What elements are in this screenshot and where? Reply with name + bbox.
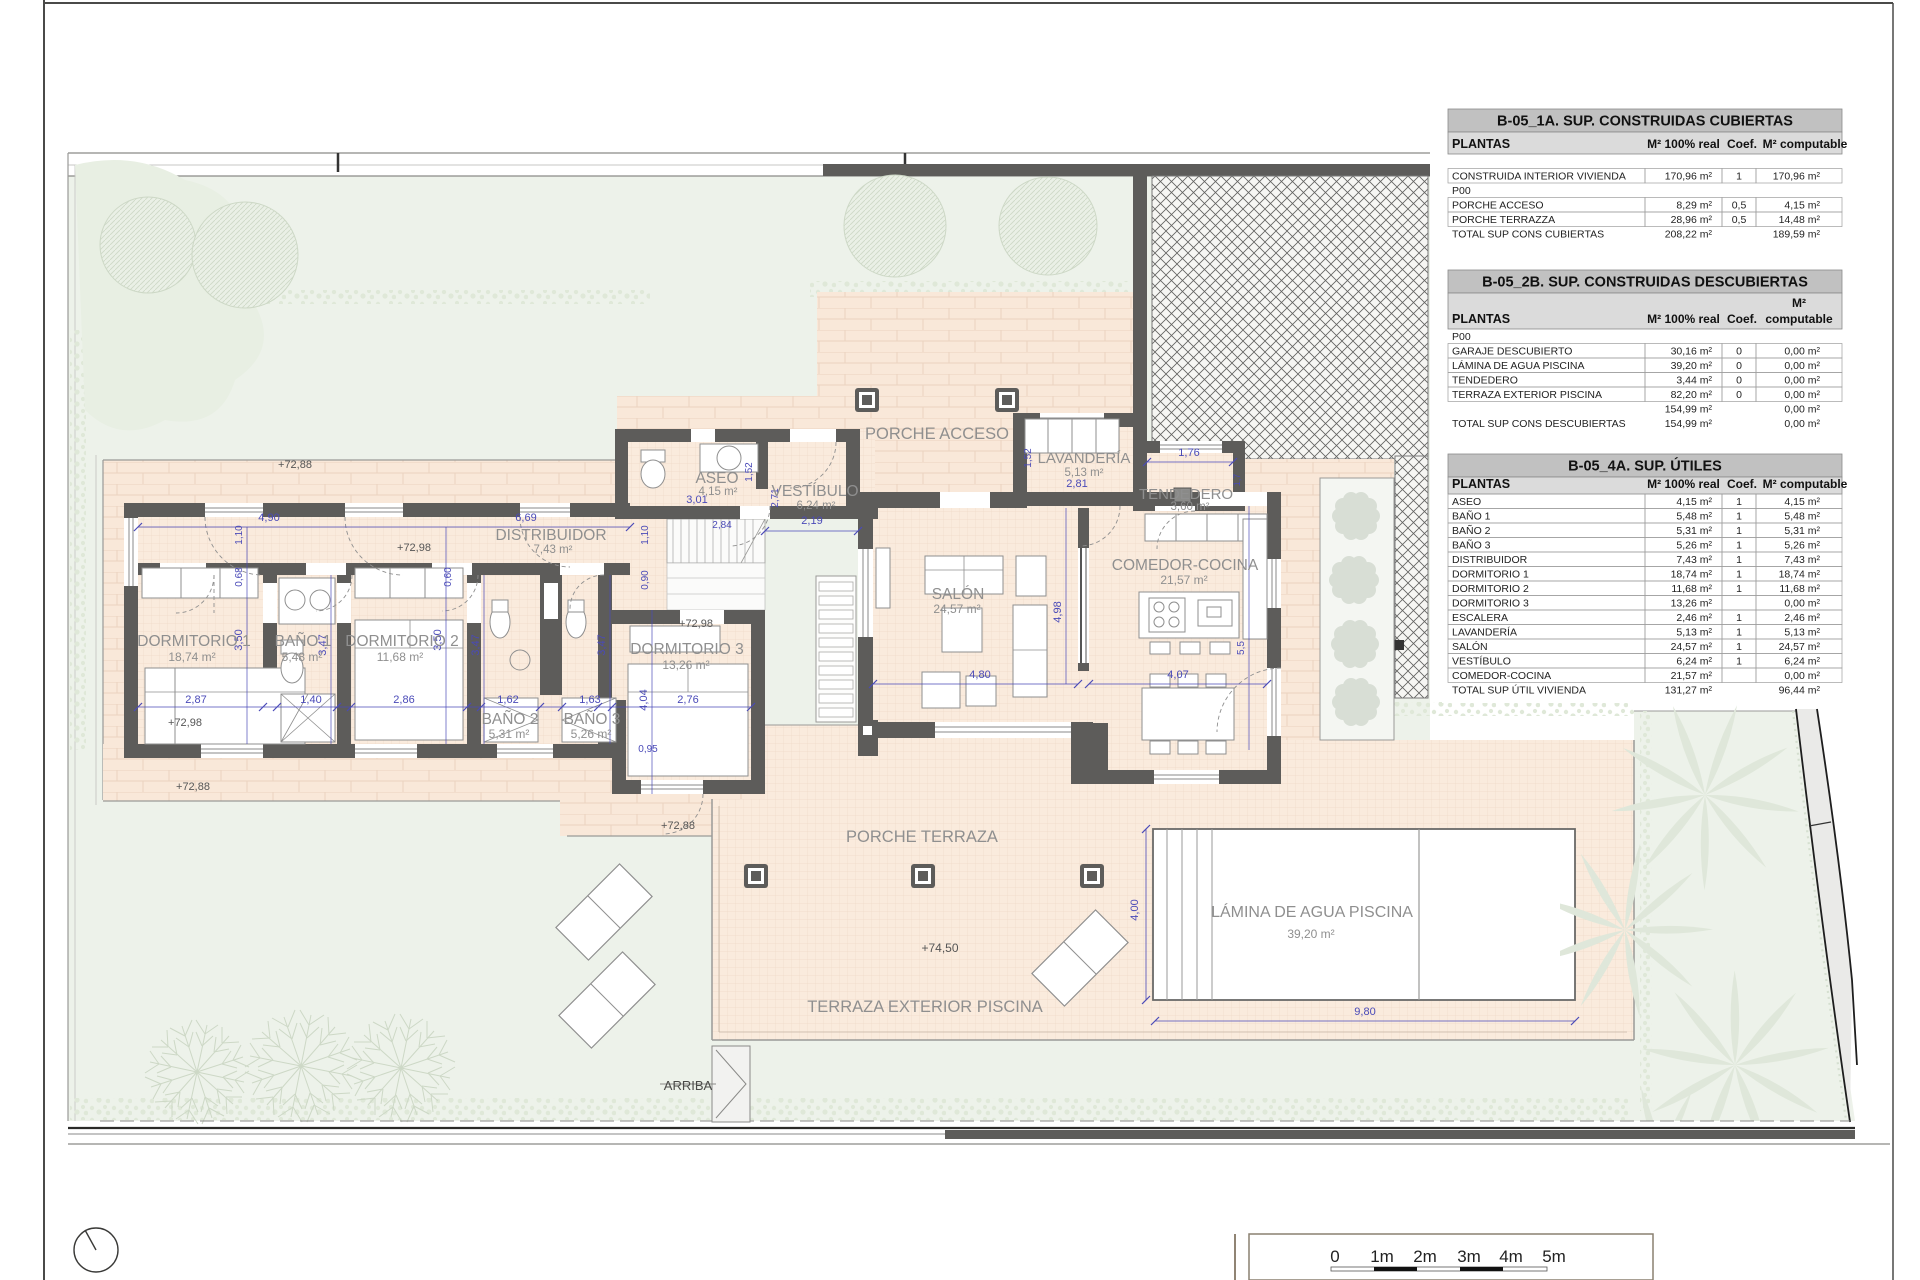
svg-text:11,68 m²: 11,68 m² (1779, 583, 1820, 595)
svg-text:21,57 m²: 21,57 m² (1160, 573, 1207, 587)
svg-text:2,76: 2,76 (677, 694, 698, 706)
svg-text:0,00 m²: 0,00 m² (1784, 598, 1820, 610)
svg-text:5,48 m²: 5,48 m² (1676, 511, 1712, 523)
svg-text:4,04: 4,04 (638, 689, 650, 710)
svg-text:computable: computable (1765, 312, 1833, 326)
svg-text:2,87: 2,87 (185, 694, 206, 706)
svg-text:ASEO: ASEO (1452, 496, 1481, 508)
svg-text:0: 0 (1736, 375, 1742, 387)
svg-text:0,90: 0,90 (640, 570, 651, 590)
svg-text:1: 1 (1736, 496, 1742, 508)
svg-text:2,46 m²: 2,46 m² (1784, 612, 1820, 624)
svg-text:4,15 m²: 4,15 m² (1784, 496, 1820, 508)
svg-text:BAÑO 3: BAÑO 3 (1452, 539, 1491, 552)
svg-text:39,20 m²: 39,20 m² (1671, 360, 1713, 372)
svg-text:B-05_2B. SUP. CONSTRUIDAS DESC: B-05_2B. SUP. CONSTRUIDAS DESCUBIERTAS (1482, 275, 1808, 291)
svg-text:24,57 m²: 24,57 m² (933, 602, 980, 616)
svg-text:0: 0 (1736, 389, 1742, 401)
svg-text:LAVANDERÍA: LAVANDERÍA (1038, 450, 1131, 467)
svg-text:11,68 m²: 11,68 m² (377, 650, 423, 664)
svg-text:1,10: 1,10 (234, 525, 245, 545)
svg-text:154,99 m²: 154,99 m² (1665, 418, 1713, 430)
svg-text:3,47: 3,47 (596, 634, 608, 655)
svg-text:ARRIBA: ARRIBA (664, 1078, 713, 1093)
svg-text:PORCHE TERRAZZA: PORCHE TERRAZZA (1452, 214, 1555, 226)
svg-text:0,60: 0,60 (443, 567, 454, 587)
svg-text:1,52: 1,52 (744, 462, 755, 482)
svg-text:5,26 m²: 5,26 m² (571, 727, 612, 741)
svg-text:DORMITORIO 1: DORMITORIO 1 (137, 633, 250, 650)
svg-text:96,44 m²: 96,44 m² (1779, 685, 1821, 697)
svg-text:0,00 m²: 0,00 m² (1784, 346, 1820, 358)
svg-text:11,68 m²: 11,68 m² (1671, 583, 1712, 595)
svg-text:1,76: 1,76 (1178, 447, 1199, 459)
svg-text:SALÓN: SALÓN (932, 586, 985, 603)
svg-text:2m: 2m (1413, 1247, 1437, 1266)
svg-text:1: 1 (1736, 554, 1742, 566)
svg-text:DORMITORIO 3: DORMITORIO 3 (630, 641, 743, 658)
svg-text:VESTÍBULO: VESTÍBULO (772, 483, 859, 500)
svg-text:+72,98: +72,98 (679, 618, 713, 630)
svg-text:LÁMINA DE AGUA PISCINA: LÁMINA DE AGUA PISCINA (1211, 902, 1413, 921)
svg-text:1,10: 1,10 (640, 525, 651, 545)
svg-text:7,43 m²: 7,43 m² (1676, 554, 1712, 566)
svg-text:170,96 m²: 170,96 m² (1665, 171, 1713, 183)
svg-text:ESCALERA: ESCALERA (1452, 612, 1508, 624)
svg-text:4,07: 4,07 (1167, 669, 1188, 681)
svg-text:14,48 m²: 14,48 m² (1779, 214, 1821, 226)
svg-text:208,22 m²: 208,22 m² (1665, 229, 1713, 241)
svg-text:VESTÍBULO: VESTÍBULO (1452, 655, 1511, 668)
svg-text:5,48 m²: 5,48 m² (1784, 511, 1820, 523)
svg-text:4,15 m²: 4,15 m² (1784, 200, 1820, 212)
svg-text:5,5: 5,5 (1236, 641, 1247, 655)
svg-text:3,47: 3,47 (470, 634, 482, 655)
svg-text:24,57 m²: 24,57 m² (1779, 641, 1821, 653)
svg-text:0: 0 (1330, 1247, 1339, 1266)
svg-text:2,86: 2,86 (393, 694, 414, 706)
svg-text:M² 100% real: M² 100% real (1647, 312, 1720, 326)
svg-text:LÁMINA DE AGUA PISCINA: LÁMINA DE AGUA PISCINA (1452, 359, 1584, 372)
svg-text:SALÓN: SALÓN (1452, 640, 1488, 653)
svg-text:+74,50: +74,50 (921, 941, 958, 955)
svg-text:4,80: 4,80 (969, 669, 990, 681)
svg-text:1: 1 (1736, 641, 1742, 653)
svg-text:Coef.: Coef. (1727, 477, 1757, 491)
svg-text:3m: 3m (1457, 1247, 1481, 1266)
svg-text:2,84: 2,84 (712, 520, 732, 531)
svg-text:1m: 1m (1370, 1247, 1394, 1266)
svg-text:5,13 m²: 5,13 m² (1065, 467, 1104, 479)
svg-text:13,26 m²: 13,26 m² (1671, 598, 1713, 610)
svg-text:DORMITORIO 1: DORMITORIO 1 (1452, 569, 1529, 581)
svg-text:Coef.: Coef. (1727, 137, 1757, 151)
svg-text:+72,98: +72,98 (397, 542, 431, 554)
svg-text:5,31 m²: 5,31 m² (1676, 525, 1712, 537)
svg-text:1,63: 1,63 (579, 694, 600, 706)
svg-text:0,00 m²: 0,00 m² (1784, 360, 1820, 372)
svg-text:5m: 5m (1542, 1247, 1566, 1266)
svg-text:5,31 m²: 5,31 m² (489, 727, 530, 741)
svg-text:CONSTRUIDA INTERIOR VIVIENDA: CONSTRUIDA INTERIOR VIVIENDA (1452, 171, 1626, 183)
svg-text:13,26 m²: 13,26 m² (662, 658, 709, 672)
svg-text:154,99 m²: 154,99 m² (1665, 404, 1713, 416)
svg-text:1: 1 (1736, 612, 1742, 624)
svg-text:5,13 m²: 5,13 m² (1676, 627, 1712, 639)
svg-text:7,43 m²: 7,43 m² (534, 544, 573, 556)
svg-text:4,00: 4,00 (1129, 899, 1141, 920)
svg-text:30,16 m²: 30,16 m² (1671, 346, 1713, 358)
svg-text:0,00 m²: 0,00 m² (1784, 389, 1820, 401)
svg-text:BAÑO 2: BAÑO 2 (482, 711, 539, 728)
svg-text:6,24 m²: 6,24 m² (1676, 656, 1712, 668)
svg-text:5,26 m²: 5,26 m² (1784, 540, 1820, 552)
svg-text:24,57 m²: 24,57 m² (1671, 641, 1713, 653)
svg-text:PLANTAS: PLANTAS (1452, 477, 1510, 491)
svg-text:1,62: 1,62 (497, 694, 518, 706)
svg-text:170,96 m²: 170,96 m² (1773, 171, 1821, 183)
svg-text:6,69: 6,69 (515, 512, 536, 524)
svg-text:1: 1 (1736, 627, 1742, 639)
svg-text:M² 100% real: M² 100% real (1647, 137, 1720, 151)
svg-text:1: 1 (1736, 171, 1742, 183)
svg-text:+72,88: +72,88 (278, 459, 312, 471)
svg-text:6,24 m²: 6,24 m² (797, 500, 836, 512)
svg-text:0,00 m²: 0,00 m² (1784, 375, 1820, 387)
svg-text:18,74 m²: 18,74 m² (168, 650, 215, 664)
svg-text:P00: P00 (1452, 185, 1471, 197)
svg-text:B-05_1A. SUP. CONSTRUIDAS CUBI: B-05_1A. SUP. CONSTRUIDAS CUBIERTAS (1497, 114, 1793, 130)
svg-text:21,57 m²: 21,57 m² (1671, 670, 1713, 682)
svg-text:5,26 m²: 5,26 m² (1676, 540, 1712, 552)
svg-text:PLANTAS: PLANTAS (1452, 137, 1510, 151)
svg-text:PORCHE ACCESO: PORCHE ACCESO (865, 425, 1009, 443)
svg-text:82,20 m²: 82,20 m² (1671, 389, 1713, 401)
svg-text:0,00 m²: 0,00 m² (1784, 404, 1820, 416)
svg-text:PLANTAS: PLANTAS (1452, 312, 1510, 326)
svg-text:M²: M² (1792, 296, 1806, 310)
svg-text:4,15 m²: 4,15 m² (699, 486, 738, 498)
svg-text:GARAJE DESCUBIERTO: GARAJE DESCUBIERTO (1452, 346, 1572, 358)
svg-text:0,00 m²: 0,00 m² (1784, 418, 1820, 430)
svg-text:1,7: 1,7 (1232, 474, 1242, 487)
svg-text:0,5: 0,5 (1732, 214, 1747, 226)
svg-text:18,74 m²: 18,74 m² (1671, 569, 1713, 581)
svg-text:1,40: 1,40 (300, 694, 321, 706)
svg-text:Coef.: Coef. (1727, 312, 1757, 326)
svg-text:5,48 m²: 5,48 m² (282, 650, 323, 664)
svg-text:18,74 m²: 18,74 m² (1779, 569, 1821, 581)
svg-text:4,15 m²: 4,15 m² (1676, 496, 1712, 508)
svg-text:BAÑO 1: BAÑO 1 (275, 633, 332, 650)
svg-text:B-05_4A. SUP. ÚTILES: B-05_4A. SUP. ÚTILES (1568, 457, 1722, 475)
svg-text:TERRAZA EXTERIOR PISCINA: TERRAZA EXTERIOR PISCINA (1452, 389, 1602, 401)
svg-text:0: 0 (1736, 360, 1742, 372)
svg-text:TOTAL SUP ÚTIL VIVIENDA: TOTAL SUP ÚTIL VIVIENDA (1452, 684, 1586, 697)
svg-text:ASEO: ASEO (695, 470, 738, 487)
svg-text:0: 0 (1736, 346, 1742, 358)
svg-text:P00: P00 (1452, 331, 1471, 343)
svg-text:4,90: 4,90 (258, 512, 279, 524)
svg-text:0,00 m²: 0,00 m² (1784, 670, 1820, 682)
svg-text:5,31 m²: 5,31 m² (1784, 525, 1820, 537)
svg-text:3,44 m²: 3,44 m² (1676, 375, 1712, 387)
svg-text:189,59 m²: 189,59 m² (1773, 229, 1821, 241)
svg-text:TENDEDERO: TENDEDERO (1452, 375, 1518, 387)
svg-text:COMEDOR-COCINA: COMEDOR-COCINA (1112, 557, 1259, 574)
svg-text:131,27 m²: 131,27 m² (1665, 685, 1713, 697)
svg-text:DISTRIBUIDOR: DISTRIBUIDOR (1452, 554, 1528, 566)
svg-text:M² computable: M² computable (1763, 137, 1848, 151)
svg-text:2,81: 2,81 (1066, 478, 1087, 490)
svg-text:28,96 m²: 28,96 m² (1671, 214, 1713, 226)
svg-text:0,68: 0,68 (234, 567, 245, 587)
svg-text:4m: 4m (1499, 1247, 1523, 1266)
svg-text:1,52: 1,52 (1023, 448, 1034, 468)
svg-text:BAÑO 2: BAÑO 2 (1452, 524, 1491, 537)
svg-text:1: 1 (1736, 511, 1742, 523)
svg-text:4,98: 4,98 (1052, 601, 1064, 622)
svg-text:3,60 m²: 3,60 m² (1171, 501, 1210, 513)
svg-text:BAÑO 3: BAÑO 3 (564, 711, 621, 728)
svg-text:1: 1 (1736, 656, 1742, 668)
svg-text:1: 1 (1736, 569, 1742, 581)
svg-text:+72,88: +72,88 (661, 820, 695, 832)
svg-text:M² computable: M² computable (1763, 477, 1848, 491)
svg-text:DORMITORIO 2: DORMITORIO 2 (1452, 583, 1529, 595)
svg-text:0,5: 0,5 (1732, 200, 1747, 212)
svg-text:39,20 m²: 39,20 m² (1287, 927, 1334, 941)
svg-text:6,24 m²: 6,24 m² (1784, 656, 1820, 668)
svg-text:DORMITORIO 3: DORMITORIO 3 (1452, 598, 1529, 610)
svg-text:+72,98: +72,98 (168, 717, 202, 729)
svg-text:PORCHE TERRAZA: PORCHE TERRAZA (846, 828, 998, 846)
svg-text:1: 1 (1736, 540, 1742, 552)
svg-text:M² 100% real: M² 100% real (1647, 477, 1720, 491)
svg-text:9,80: 9,80 (1354, 1006, 1375, 1018)
svg-text:1: 1 (1736, 525, 1742, 537)
svg-text:1: 1 (1736, 583, 1742, 595)
svg-text:TERRAZA EXTERIOR PISCINA: TERRAZA EXTERIOR PISCINA (807, 998, 1043, 1016)
svg-text:2,46 m²: 2,46 m² (1676, 612, 1712, 624)
svg-text:TOTAL SUP CONS CUBIERTAS: TOTAL SUP CONS CUBIERTAS (1452, 229, 1604, 241)
svg-text:DORMITORIO 2: DORMITORIO 2 (345, 633, 458, 650)
svg-text:COMEDOR-COCINA: COMEDOR-COCINA (1452, 670, 1551, 682)
svg-text:8,29 m²: 8,29 m² (1676, 200, 1712, 212)
svg-text:TOTAL SUP CONS DESCUBIERTAS: TOTAL SUP CONS DESCUBIERTAS (1452, 418, 1626, 430)
svg-text:2,19: 2,19 (801, 515, 822, 527)
svg-text:PORCHE ACCESO: PORCHE ACCESO (1452, 200, 1544, 212)
svg-text:5,13 m²: 5,13 m² (1784, 627, 1820, 639)
svg-text:DISTRIBUIDOR: DISTRIBUIDOR (495, 527, 606, 544)
svg-text:+72,88: +72,88 (176, 781, 210, 793)
svg-text:BAÑO 1: BAÑO 1 (1452, 510, 1491, 523)
svg-text:LAVANDERÍA: LAVANDERÍA (1452, 626, 1517, 639)
svg-text:0,95: 0,95 (638, 744, 658, 755)
svg-text:7,43 m²: 7,43 m² (1784, 554, 1820, 566)
